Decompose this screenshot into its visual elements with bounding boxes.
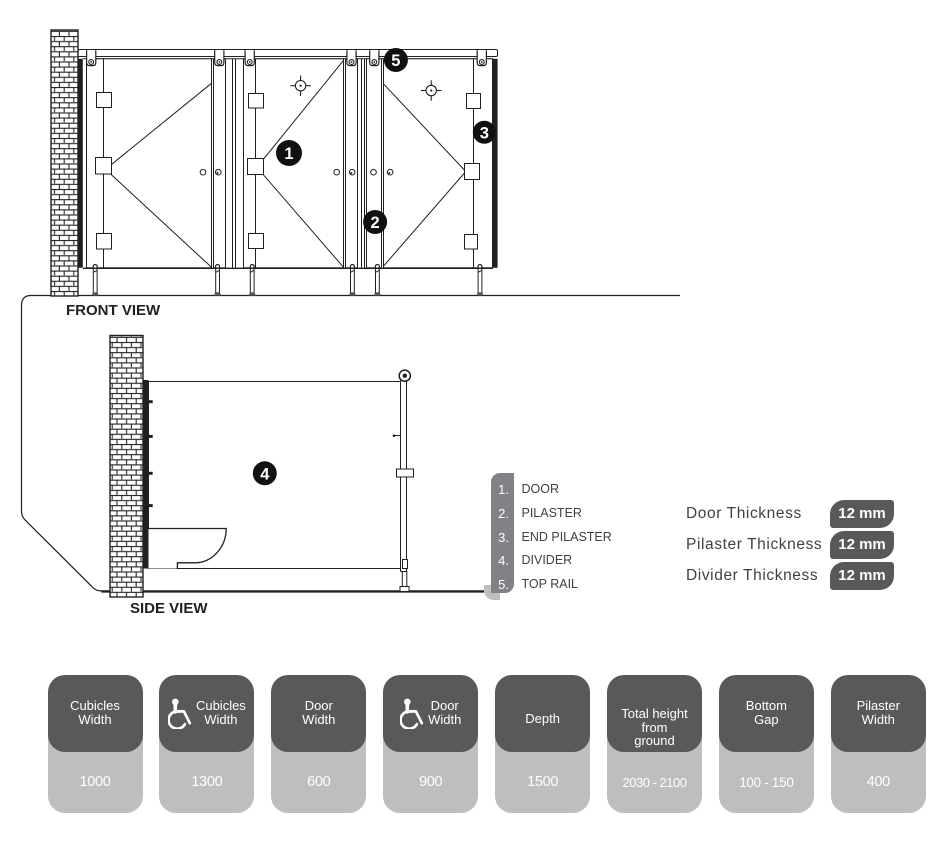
svg-text:SIDE VIEW: SIDE VIEW xyxy=(130,600,208,617)
svg-text:2: 2 xyxy=(371,214,380,232)
svg-text:FRONT VIEW: FRONT VIEW xyxy=(66,302,161,319)
svg-text:5: 5 xyxy=(391,52,400,70)
svg-text:3: 3 xyxy=(480,124,489,142)
svg-text:4: 4 xyxy=(260,465,270,483)
svg-text:1: 1 xyxy=(284,145,293,163)
